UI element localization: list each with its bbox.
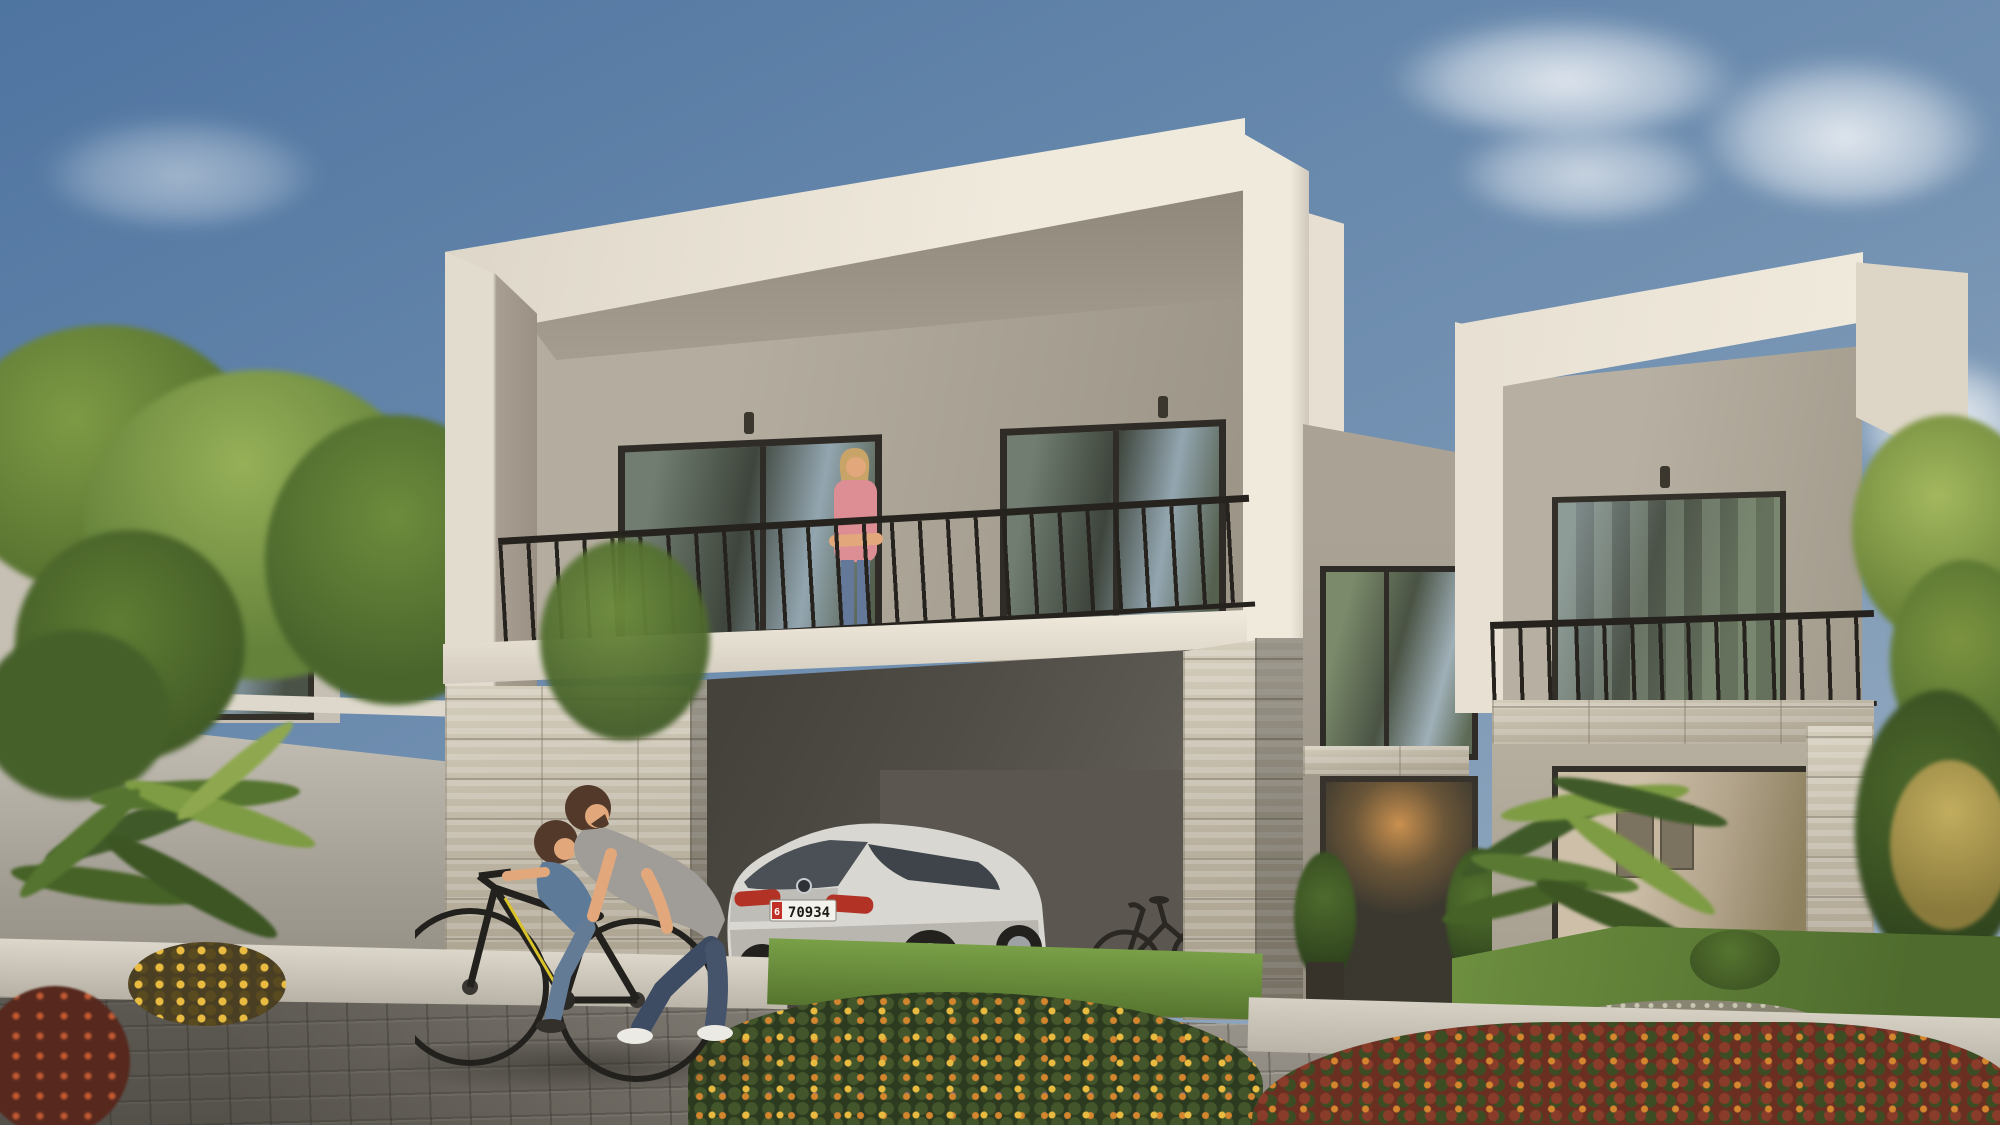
- cloud: [1390, 15, 1740, 135]
- father-shoe: [617, 1028, 653, 1044]
- car-brand-roundel: [797, 879, 811, 893]
- villa-exterior-render: 6 70934: [0, 0, 2000, 1125]
- window-mullion: [1384, 572, 1389, 754]
- son-shoe: [536, 1019, 566, 1033]
- round-bush: [1690, 930, 1780, 990]
- woman-face: [846, 457, 866, 477]
- father-jeans-front-leg: [641, 946, 711, 1028]
- front-tree-canopy: [540, 540, 710, 740]
- bicycle-seat: [1149, 896, 1169, 904]
- son-arm: [507, 872, 545, 876]
- bike-accent: [505, 898, 560, 992]
- wall-sconce: [744, 412, 754, 434]
- father-teaching-son-to-ride-bike: [415, 770, 760, 1082]
- cloud: [40, 115, 320, 225]
- son-face: [554, 838, 576, 860]
- cloud: [1700, 55, 1990, 205]
- plate-region-digit: 6: [774, 907, 780, 918]
- license-plate: 6 70934: [770, 900, 836, 921]
- father-shoe: [697, 1025, 733, 1041]
- yellow-flower-bed: [128, 942, 286, 1026]
- ornamental-grass: [1890, 760, 2000, 930]
- plate-number: 70934: [788, 905, 830, 921]
- wall-sconce: [1660, 466, 1670, 488]
- wall-sconce: [1158, 396, 1168, 418]
- cloud: [1455, 120, 1715, 220]
- father-jeans-back-leg: [715, 950, 718, 1024]
